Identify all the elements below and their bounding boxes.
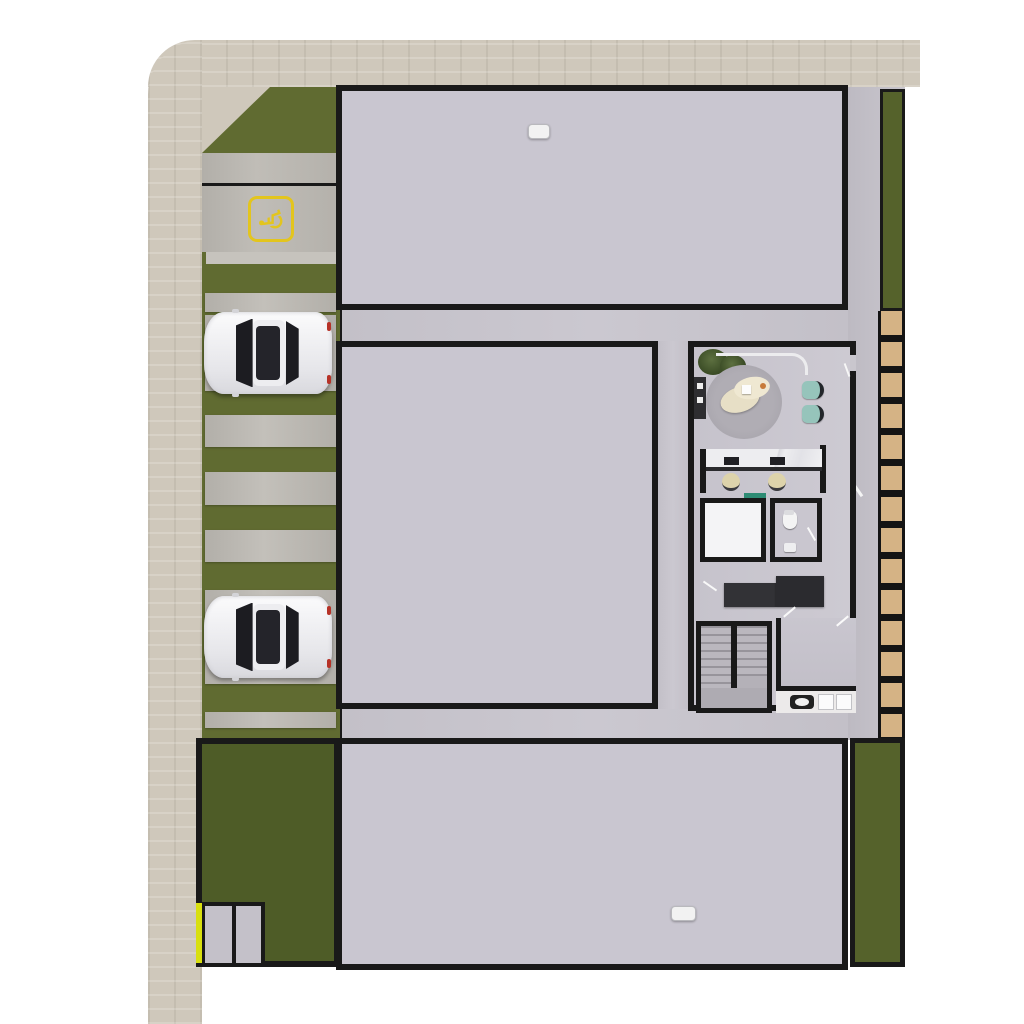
parking-pad [205, 472, 336, 505]
lockers [724, 583, 776, 607]
corridor-central [658, 341, 688, 709]
green-strip-southeast [850, 738, 905, 967]
lounge-cabinet [694, 377, 706, 419]
desk-chair [768, 473, 786, 491]
lockers [776, 576, 824, 607]
sidewalk-top [148, 40, 920, 87]
door-leaf [836, 615, 849, 626]
car-windshield [236, 603, 253, 672]
car-windshield [236, 319, 253, 388]
wheelchair-glyph: ♿ [255, 205, 287, 234]
fenced-yard [196, 738, 340, 967]
car-taillight [327, 606, 331, 615]
green-strip-northeast [880, 89, 905, 311]
parking-pad [205, 415, 336, 447]
utility-rooms [201, 902, 265, 967]
sidewalk-left [148, 40, 202, 1024]
car-rear-window [286, 321, 299, 385]
waste-bin-icon [671, 906, 696, 921]
handicap-icon: ♿ [248, 196, 294, 242]
stepping-pavers [878, 311, 905, 740]
coworking-desk [706, 467, 822, 471]
desk-monitor-icon [770, 457, 785, 465]
amenity-block [688, 341, 856, 711]
appliance-icon [836, 694, 852, 710]
car-taillight [327, 375, 331, 384]
corridor-south [342, 709, 848, 738]
studio-block [336, 341, 658, 709]
stool [742, 385, 751, 394]
yellow-gate [196, 903, 202, 963]
parking-strip: ♿ [202, 87, 340, 740]
site-plan-canvas: ♿ [0, 0, 1024, 1024]
armchair [802, 405, 824, 423]
door-leaf [783, 606, 796, 617]
car [204, 596, 332, 678]
laundry-counter [776, 691, 856, 713]
parking-pad-occupied [205, 590, 336, 684]
car-sunroof [256, 610, 279, 664]
car-mirror [232, 309, 239, 313]
curb-strip [206, 252, 339, 264]
parking-pad [205, 293, 336, 312]
corridor-north [342, 310, 848, 341]
parking-pad-occupied [205, 315, 336, 391]
sidewalk-corner-cut [202, 87, 270, 153]
appliance-icon [818, 694, 834, 710]
car [204, 312, 332, 394]
car-rear-window [286, 605, 299, 669]
waste-bin-icon [528, 124, 550, 139]
decor-bowl [760, 383, 766, 389]
service-room [776, 618, 856, 691]
parking-pad [205, 712, 336, 728]
car-mirror [232, 593, 239, 597]
stair-landing [701, 688, 767, 708]
sink-icon [790, 695, 814, 709]
stair-flight [737, 626, 767, 676]
car-mirror [232, 393, 239, 397]
door-leaf [703, 581, 717, 592]
accessible-parking-pad: ♿ [202, 186, 339, 252]
south-unit-row [336, 738, 848, 970]
stair-flight [701, 626, 731, 688]
sink-icon [784, 543, 796, 552]
desk-chair [722, 473, 740, 491]
storage-room [700, 498, 766, 562]
car-taillight [327, 322, 331, 331]
toilet-icon [783, 511, 797, 529]
desk-monitor-icon [724, 457, 739, 465]
car-mirror [232, 677, 239, 681]
car-sunroof [256, 326, 279, 380]
door-opening [850, 355, 856, 371]
north-unit-row [336, 85, 848, 310]
car-taillight [327, 659, 331, 668]
staircase [696, 621, 772, 713]
armchair [802, 381, 824, 399]
door-leaf [807, 527, 816, 541]
curb-strip [202, 153, 339, 183]
shared-wc [770, 498, 822, 562]
parking-pad [205, 530, 336, 562]
